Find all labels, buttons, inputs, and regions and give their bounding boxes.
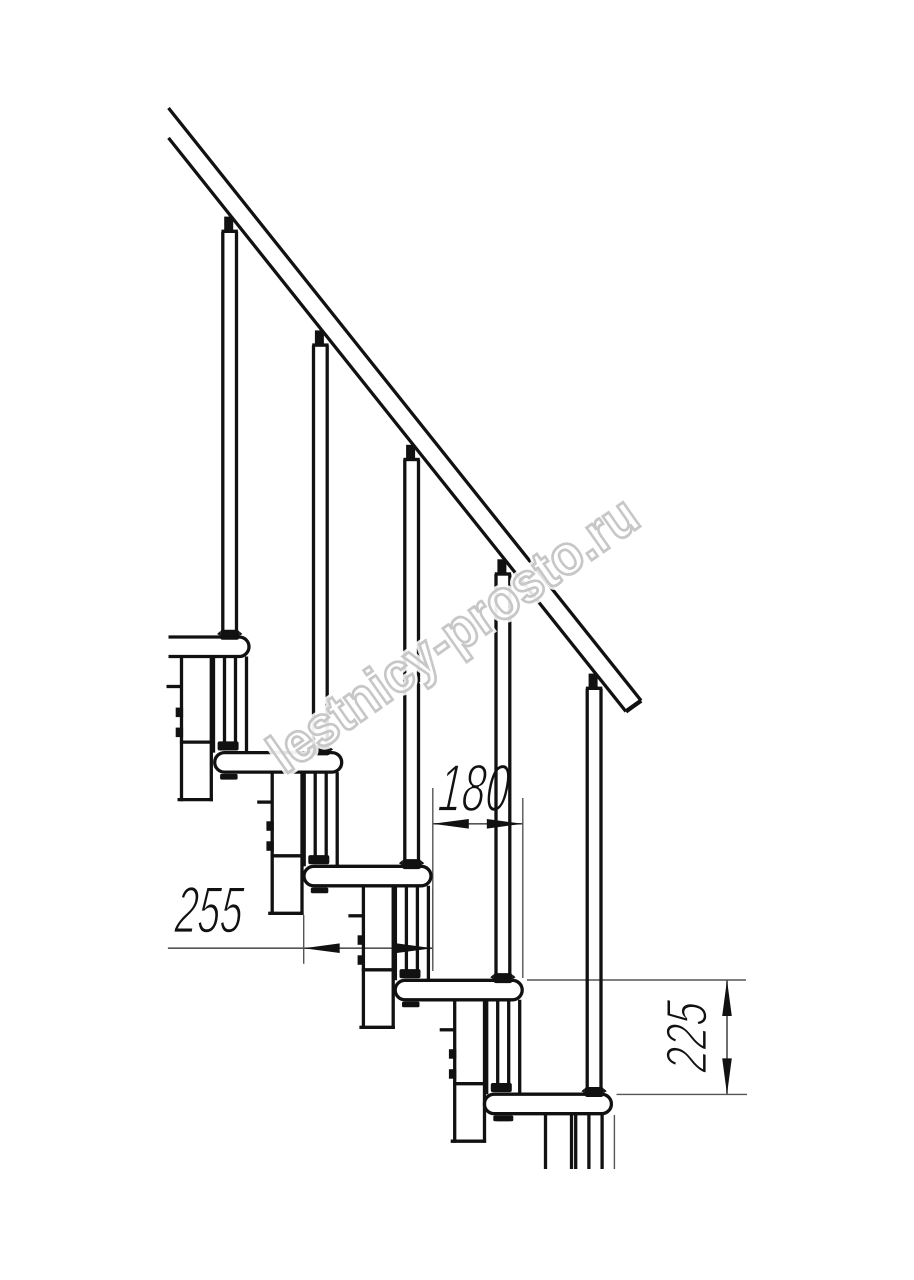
svg-text:180: 180	[436, 750, 513, 825]
svg-text:255: 255	[172, 872, 247, 947]
svg-text:225: 225	[654, 997, 719, 1075]
